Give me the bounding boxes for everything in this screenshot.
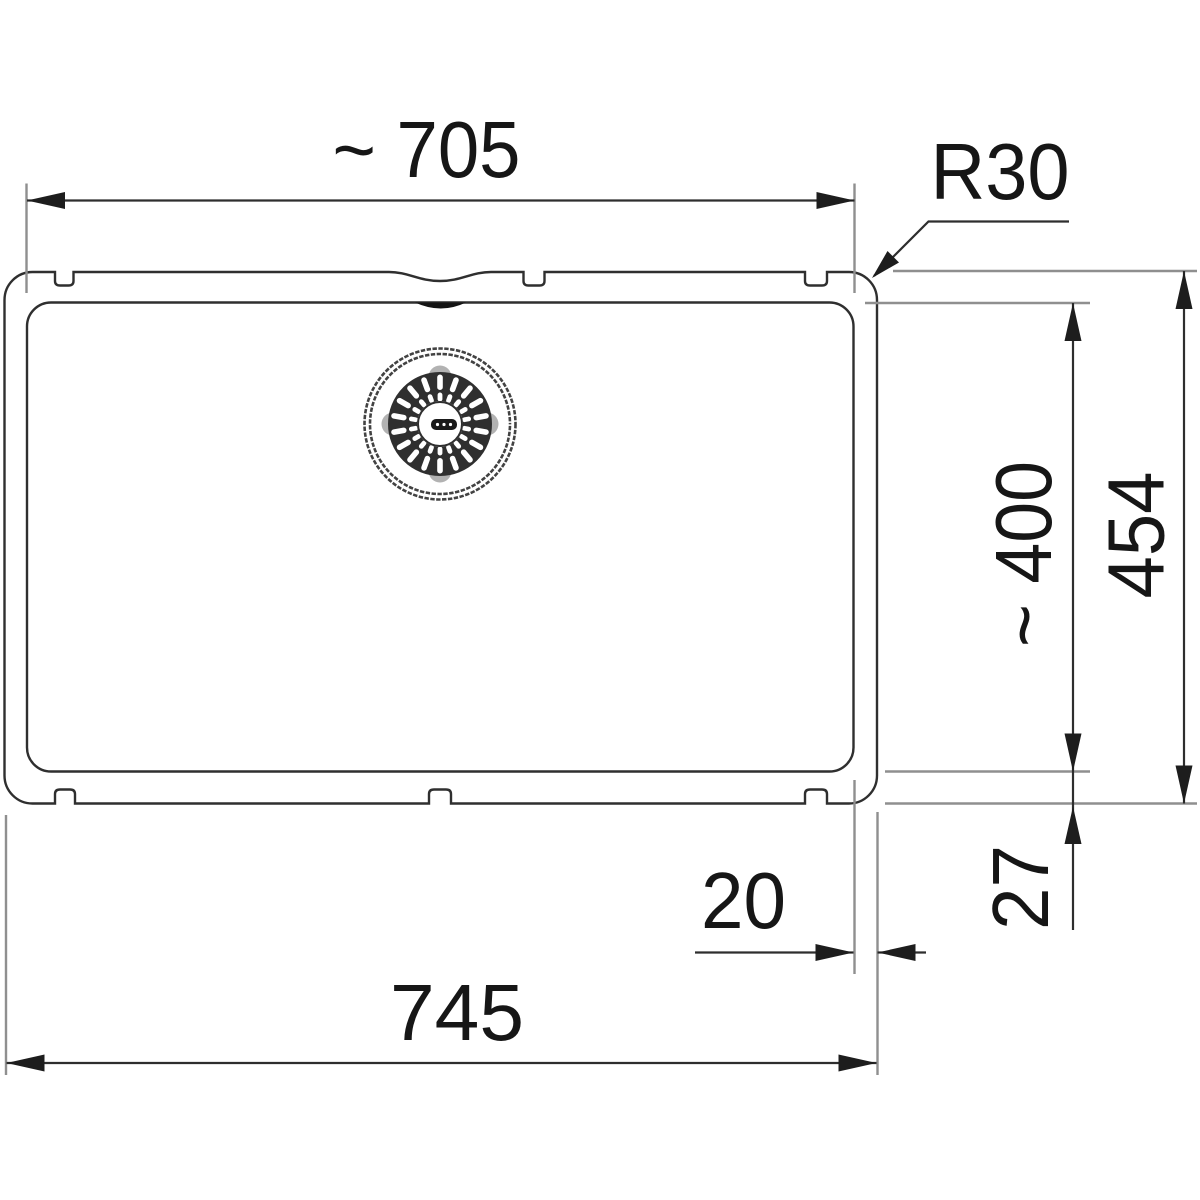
svg-text:~ 400: ~ 400 bbox=[979, 461, 1068, 647]
svg-text:20: 20 bbox=[701, 856, 786, 945]
svg-text:R30: R30 bbox=[931, 127, 1070, 216]
svg-text:27: 27 bbox=[976, 845, 1065, 930]
svg-text:745: 745 bbox=[390, 968, 524, 1057]
svg-text:454: 454 bbox=[1092, 472, 1181, 599]
svg-text:~ 705: ~ 705 bbox=[333, 105, 521, 194]
